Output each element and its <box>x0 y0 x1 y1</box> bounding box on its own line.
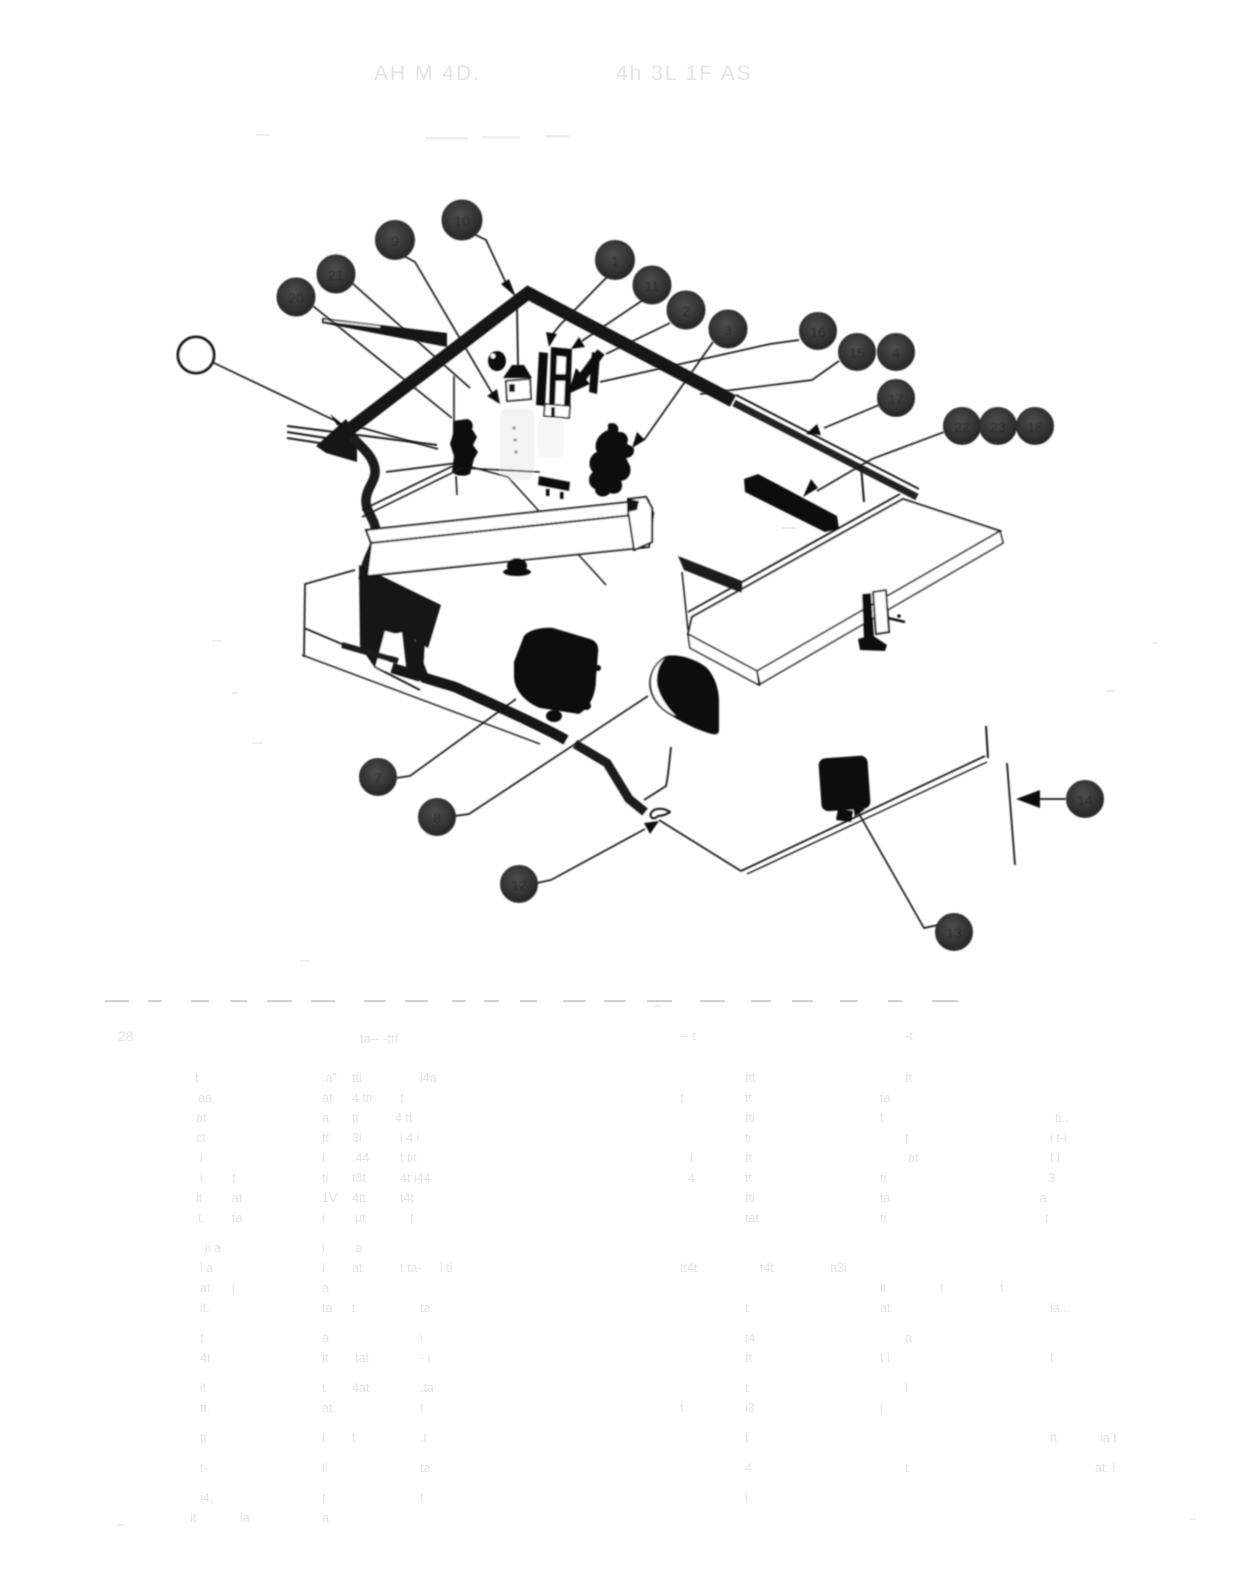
svg-text:i: i <box>322 1241 325 1255</box>
svg-text:.a": .a" <box>322 1071 337 1085</box>
svg-text:14: 14 <box>1077 792 1093 808</box>
svg-text:18: 18 <box>1027 419 1043 435</box>
svg-text:i a: i a <box>200 1261 213 1275</box>
svg-text:t: t <box>940 1281 944 1295</box>
svg-text:9: 9 <box>391 233 399 249</box>
svg-text:4 tt: 4 tt <box>395 1111 413 1125</box>
svg-text:16: 16 <box>810 324 826 340</box>
svg-text:i: i <box>232 1281 235 1295</box>
svg-text:tti: tti <box>745 1111 755 1125</box>
svg-text:1: 1 <box>611 253 619 269</box>
svg-text:ia...: ia... <box>1050 1301 1070 1315</box>
svg-text:i4,: i4, <box>200 1491 213 1505</box>
svg-text:t: t <box>680 1091 684 1105</box>
svg-text:ti: ti <box>322 1171 328 1185</box>
svg-text:it.: it. <box>200 1301 210 1315</box>
svg-text:22: 22 <box>954 419 970 435</box>
svg-text:20: 20 <box>288 290 304 306</box>
svg-text:t ta-: t ta- <box>400 1261 422 1275</box>
svg-text:1V: 1V <box>322 1191 338 1205</box>
svg-text:a: a <box>322 1511 329 1525</box>
svg-text:ii: ii <box>322 1461 328 1475</box>
svg-text:t: t <box>420 1401 424 1415</box>
svg-text:t: t <box>905 1461 909 1475</box>
svg-text:ti: ti <box>880 1171 886 1185</box>
svg-text:ti: ti <box>880 1211 886 1225</box>
svg-text:11: 11 <box>645 278 660 294</box>
svg-text:tt: tt <box>905 1071 912 1085</box>
svg-text:i ti: i ti <box>440 1261 453 1275</box>
svg-text:a: a <box>322 1281 329 1295</box>
svg-text:2: 2 <box>682 303 690 319</box>
svg-text:a: a <box>322 1331 329 1345</box>
svg-text:tt: tt <box>322 1131 329 1145</box>
svg-text:t4: t4 <box>745 1331 755 1345</box>
svg-text:it: it <box>190 1511 197 1525</box>
svg-text:t: t <box>322 1491 326 1505</box>
svg-text:ii a: ii a <box>205 1241 221 1255</box>
svg-text:t: t <box>420 1491 424 1505</box>
svg-text:4: 4 <box>745 1461 752 1475</box>
svg-text:ta: ta <box>322 1301 332 1315</box>
svg-text:t: t <box>680 1401 684 1415</box>
svg-text:ta: ta <box>880 1091 890 1105</box>
svg-text:t4t: t4t <box>400 1191 414 1205</box>
svg-text:i: i <box>880 1401 883 1415</box>
svg-text:tt: tt <box>745 1151 752 1165</box>
svg-text:at: at <box>322 1401 333 1415</box>
svg-text:i t-i: i t-i <box>1050 1131 1067 1145</box>
svg-text:4 tti: 4 tti <box>352 1091 372 1105</box>
svg-text:t: t <box>352 1301 356 1315</box>
svg-text:tt: tt <box>745 1091 752 1105</box>
svg-text:ti: ti <box>352 1111 358 1125</box>
svg-text:at. i: at. i <box>1095 1461 1115 1475</box>
svg-text:t4t: t4t <box>760 1261 774 1275</box>
svg-text:t.: t. <box>198 1211 205 1225</box>
svg-text:t: t <box>745 1431 749 1445</box>
svg-text:ti..: ti.. <box>1055 1111 1068 1125</box>
svg-text:t-: t- <box>200 1461 208 1475</box>
svg-text:-t: -t <box>905 1028 913 1043</box>
svg-text:i: i <box>200 1171 203 1185</box>
svg-text:t: t <box>745 1381 749 1395</box>
svg-text:i: i <box>905 1381 908 1395</box>
svg-text:it: it <box>196 1191 203 1205</box>
svg-text:i4a: i4a <box>420 1071 437 1085</box>
svg-text:ta: ta <box>880 1191 890 1205</box>
svg-text:ti: ti <box>745 1131 751 1145</box>
svg-text:4: 4 <box>688 1171 695 1185</box>
svg-text:4at: 4at <box>352 1381 370 1395</box>
svg-text:4: 4 <box>892 345 900 361</box>
svg-text:tat: tat <box>355 1351 369 1365</box>
svg-text:.ta: .ta <box>420 1381 434 1395</box>
svg-text:ct: ct <box>196 1131 206 1145</box>
svg-text:a: a <box>1040 1191 1047 1205</box>
svg-text:-- t: -- t <box>680 1028 696 1043</box>
svg-text:t i: t i <box>1050 1151 1060 1165</box>
svg-text:AH M 4D.: AH M 4D. <box>374 62 481 85</box>
svg-text:t: t <box>322 1381 326 1395</box>
svg-text:t: t <box>410 1211 414 1225</box>
svg-text:ut: ut <box>355 1211 366 1225</box>
svg-text:t: t <box>1050 1351 1054 1365</box>
svg-text:a: a <box>322 1111 329 1125</box>
svg-text:i: i <box>322 1211 325 1225</box>
svg-text:8: 8 <box>433 810 441 826</box>
svg-text:tt: tt <box>745 1351 752 1365</box>
svg-text:tti: tti <box>745 1191 755 1205</box>
svg-text:t: t <box>880 1111 884 1125</box>
svg-text:t: t <box>200 1331 204 1345</box>
svg-text:tt: tt <box>1050 1431 1057 1445</box>
svg-text:t3t: t3t <box>352 1171 366 1185</box>
svg-text:i 4 i: i 4 i <box>400 1131 419 1145</box>
svg-text:ia: ia <box>240 1511 250 1525</box>
svg-text:it: it <box>200 1381 207 1395</box>
svg-text:tt4t: tt4t <box>680 1261 698 1275</box>
svg-text:at: at <box>232 1191 243 1205</box>
svg-text:i: i <box>322 1431 325 1445</box>
svg-text:t: t <box>400 1091 404 1105</box>
svg-text:7: 7 <box>374 770 382 786</box>
svg-text:ttt: ttt <box>745 1071 756 1085</box>
svg-text:at: at <box>196 1111 207 1125</box>
svg-text:15: 15 <box>849 345 865 361</box>
svg-text:tt: tt <box>745 1171 752 1185</box>
svg-text:at: at <box>352 1261 363 1275</box>
svg-text:it: it <box>322 1351 329 1365</box>
svg-text:4tt: 4tt <box>352 1191 366 1205</box>
svg-text:ta-- -ttf: ta-- -ttf <box>360 1031 399 1046</box>
svg-text:23: 23 <box>990 419 1006 435</box>
svg-text:.44: .44 <box>352 1151 369 1165</box>
svg-text:at: at <box>908 1151 919 1165</box>
svg-text:ia t: ia t <box>1100 1431 1117 1445</box>
svg-text:.a: .a <box>352 1241 362 1255</box>
svg-text:ti: ti <box>200 1431 206 1445</box>
svg-text:i3: i3 <box>745 1401 755 1415</box>
svg-text:it: it <box>880 1281 887 1295</box>
svg-text:21: 21 <box>328 267 344 283</box>
svg-text:.t: .t <box>420 1431 427 1445</box>
svg-text:a: a <box>905 1331 912 1345</box>
svg-text:t: t <box>1000 1281 1004 1295</box>
svg-text:4t i44: 4t i44 <box>400 1171 431 1185</box>
svg-text:t: t <box>352 1431 356 1445</box>
svg-text:i: i <box>420 1331 423 1345</box>
svg-text:aa: aa <box>198 1091 212 1105</box>
svg-text:tt3i: tt3i <box>830 1261 847 1275</box>
svg-text:tat: tat <box>745 1211 759 1225</box>
svg-text:t: t <box>1045 1211 1049 1225</box>
svg-text:3: 3 <box>1048 1171 1055 1185</box>
svg-text:- i: - i <box>420 1351 430 1365</box>
svg-text:at: at <box>322 1091 333 1105</box>
svg-text:3i: 3i <box>352 1131 362 1145</box>
svg-text:i: i <box>322 1261 325 1275</box>
svg-text:10: 10 <box>454 213 470 229</box>
svg-text:t tit: t tit <box>400 1151 417 1165</box>
svg-text:at: at <box>880 1301 891 1315</box>
svg-text:17: 17 <box>888 391 904 407</box>
svg-text:i: i <box>200 1151 203 1165</box>
svg-text:ta: ta <box>232 1211 242 1225</box>
svg-text:i: i <box>322 1151 325 1165</box>
svg-text:12: 12 <box>511 877 527 893</box>
svg-text:at: at <box>200 1281 211 1295</box>
svg-text:4t: 4t <box>200 1351 211 1365</box>
svg-text:t: t <box>905 1131 909 1145</box>
svg-text:ta: ta <box>420 1301 430 1315</box>
svg-text:t: t <box>195 1071 199 1085</box>
svg-text:t: t <box>232 1171 236 1185</box>
svg-text:ta: ta <box>420 1461 430 1475</box>
svg-text:4h 3L 1F AS: 4h 3L 1F AS <box>616 62 753 85</box>
svg-text:tt.: tt. <box>200 1401 210 1415</box>
svg-text:13: 13 <box>946 925 962 941</box>
svg-text:t i: t i <box>880 1351 890 1365</box>
svg-text:tti: tti <box>352 1071 362 1085</box>
svg-text:i: i <box>745 1491 748 1505</box>
svg-text:i: i <box>690 1151 693 1165</box>
svg-text:3: 3 <box>724 322 732 338</box>
svg-text:t: t <box>745 1301 749 1315</box>
svg-text:28: 28 <box>118 1028 134 1044</box>
